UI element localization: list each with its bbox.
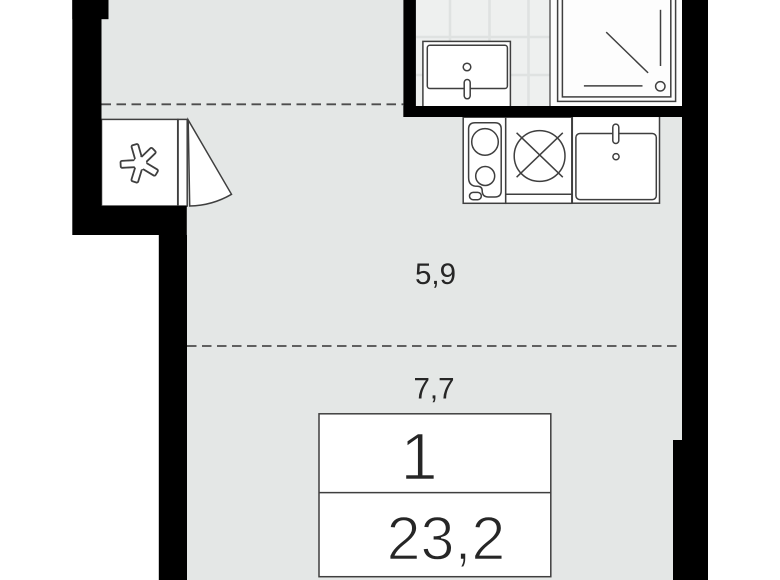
svg-text:5,9: 5,9 — [415, 258, 456, 291]
svg-text:7,7: 7,7 — [413, 372, 454, 405]
svg-text:23,2: 23,2 — [387, 505, 506, 573]
svg-text:1: 1 — [400, 420, 437, 495]
